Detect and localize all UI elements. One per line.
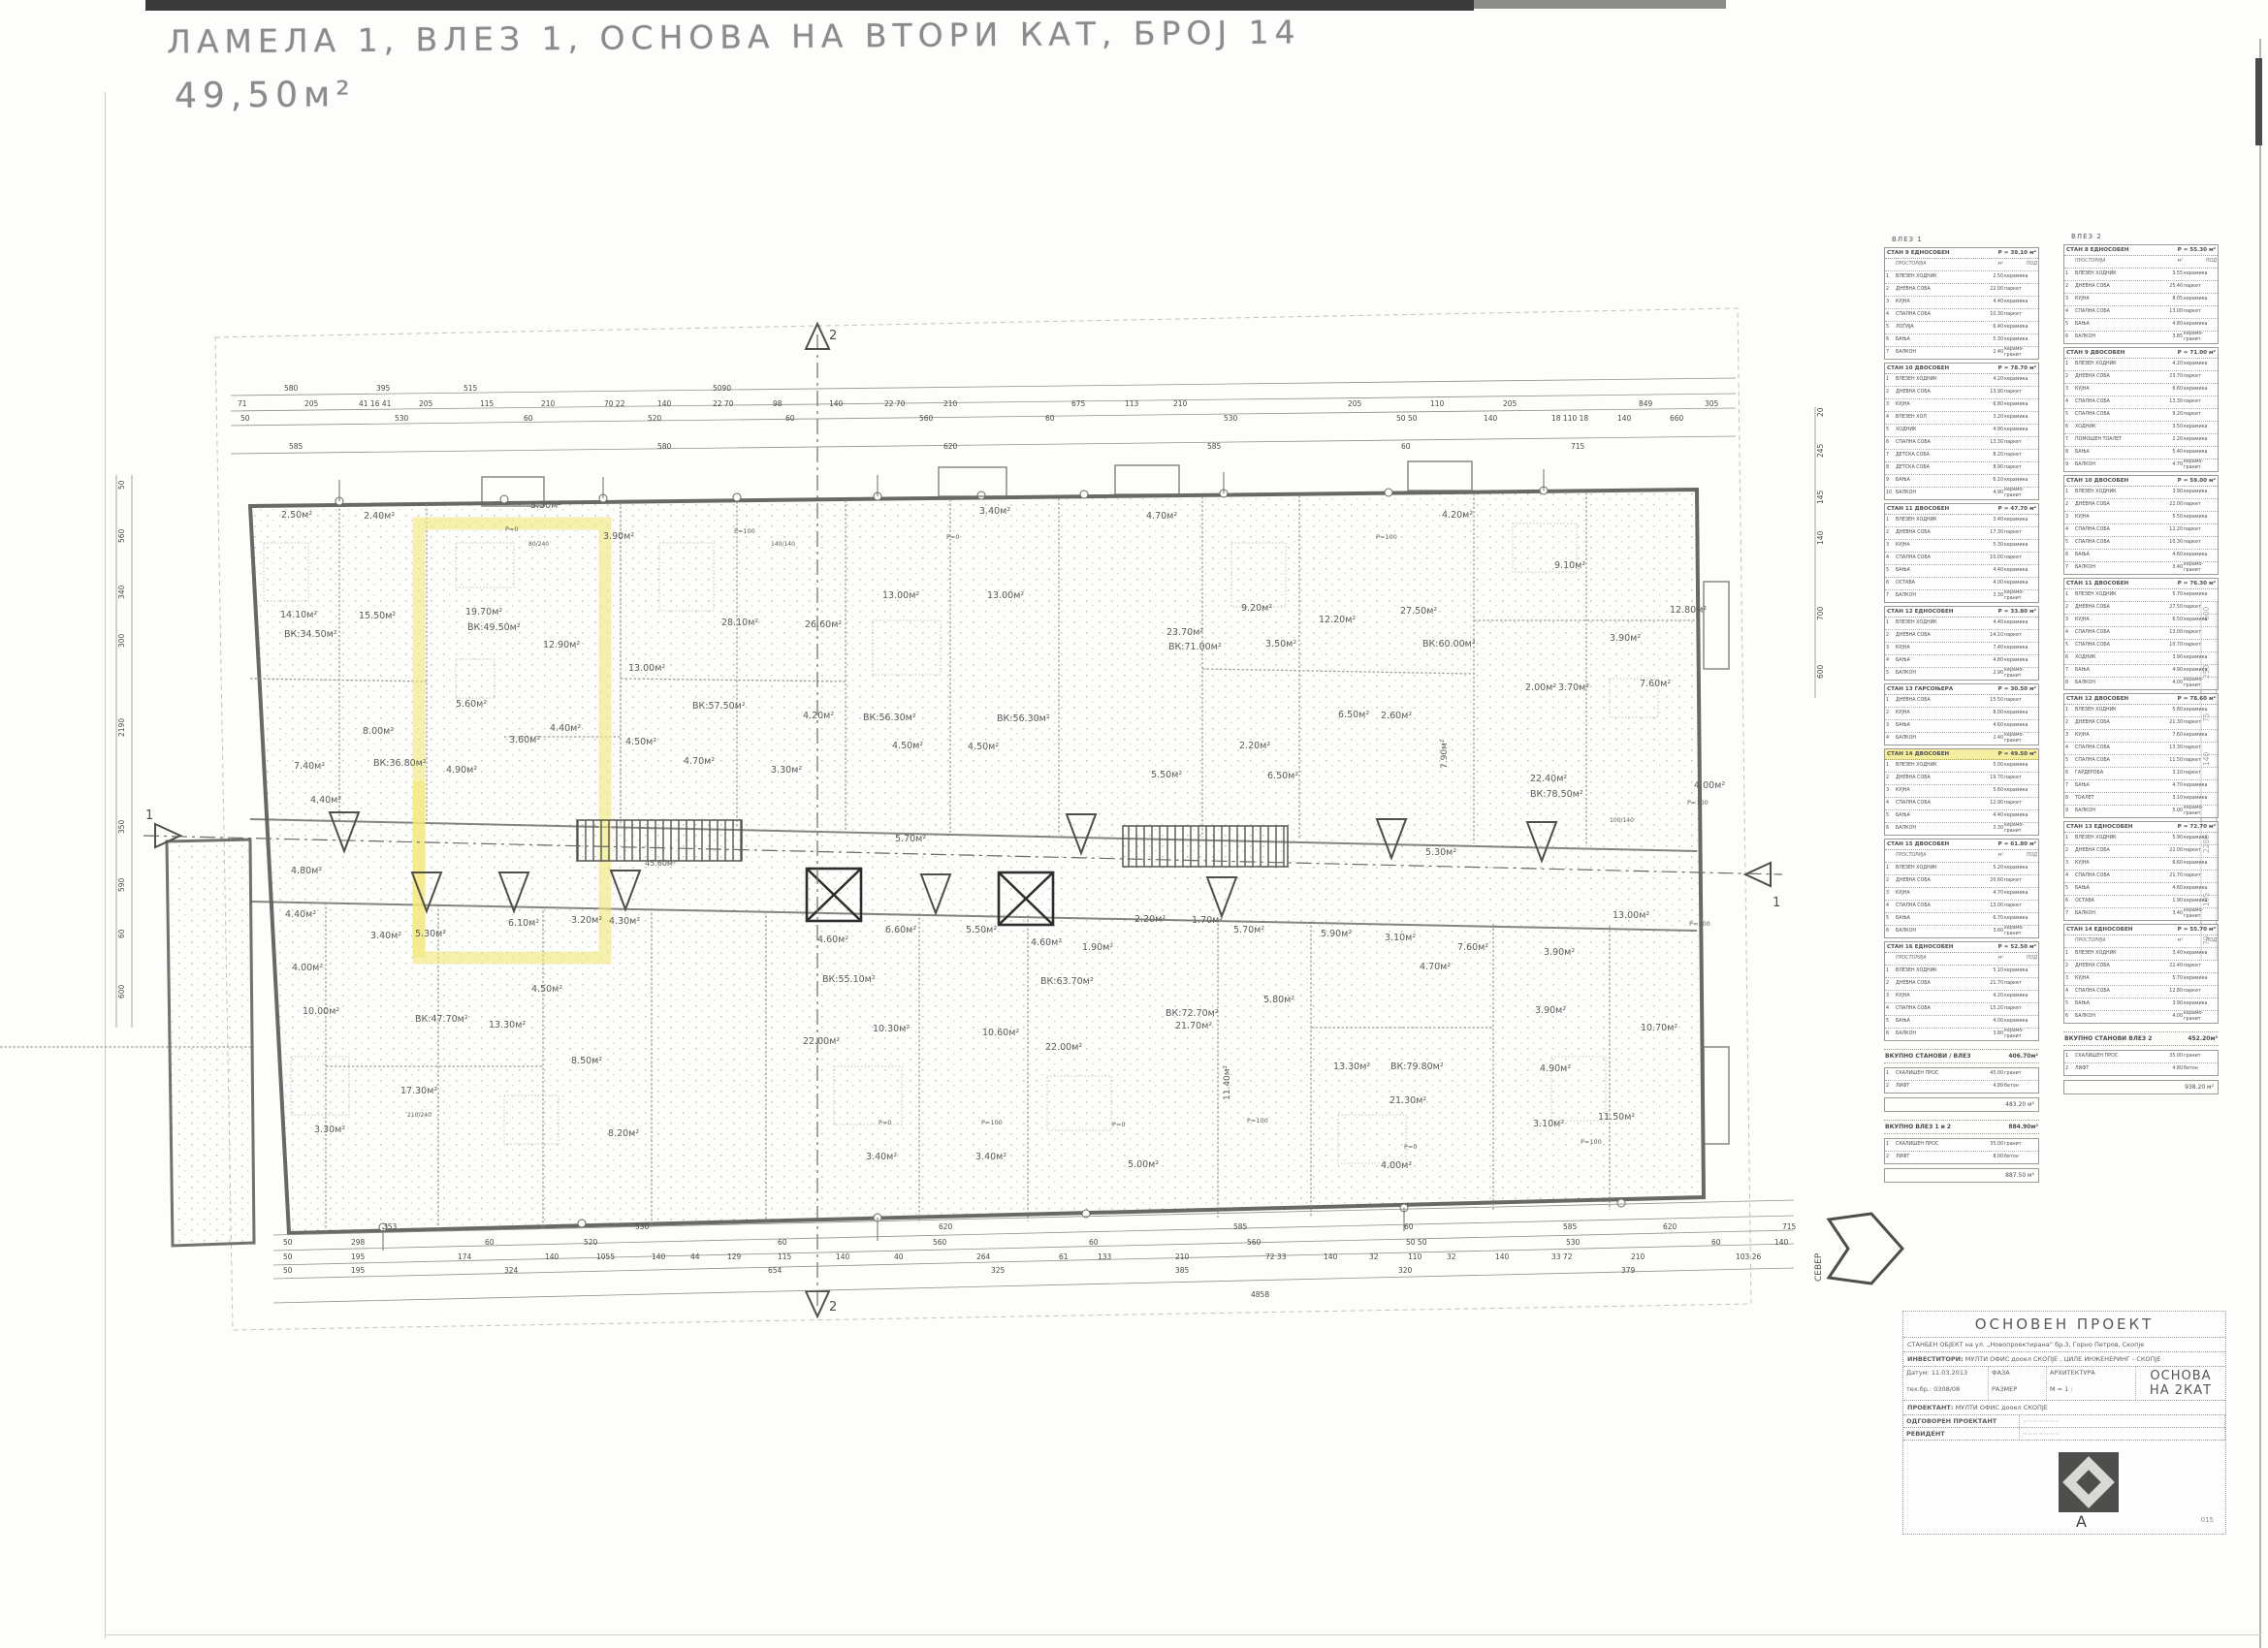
room-row: 6БАЊА5.30керамика [1885, 334, 2038, 347]
room-row: 3КУЈНА5.60керамика [1885, 785, 2038, 798]
room-row: 6БАЛКОН3.30керамо-гранит [1885, 823, 2038, 835]
dimension-label: 530 [1224, 414, 1238, 423]
totals-row: 1СКАЛИШЕН ПРОС.45.00гранит [1885, 1068, 2038, 1081]
responsible-signature-area: ~~~~~~~ [2020, 1415, 2225, 1427]
room-row: 5БАЊА3.90керамика [2064, 998, 2218, 1011]
totals-block: ВКУПНО СТАНОВИ / ВЛЕЗ406.70м²1СКАЛИШЕН П… [1884, 1049, 2039, 1112]
apartment-section-header: СТАН 13 ГАРСОЊЕРАP = 30.50 м² [1885, 684, 2038, 695]
room-area-label: 5.90м² [1321, 929, 1352, 939]
room-area-label: 3.60м² [509, 735, 540, 745]
room-row: 2ДНЕВНА СОБА17.30паркет [1885, 527, 2038, 540]
dimension-label: 50 [283, 1238, 293, 1247]
room-area-label: 7.60м² [1457, 942, 1488, 953]
room-row: 1ВЛЕЗЕН ХОДНИК3.40керамика [2064, 948, 2218, 961]
apartment-section-header: СТАН 14 ЕДНОСОБЕНP = 55.70 м² [2064, 925, 2218, 935]
room-row: 4СПАЛНА СОБА21.70паркет [2064, 871, 2218, 883]
apartment-table-entrance-1: ВЛЕЗ 1 СТАН 9 ЕДНОСОБЕНP = 39.10 м²ПРОСТ… [1884, 236, 2039, 1183]
room-row: 7БАЛКОН3.30керамо-гранит [1885, 590, 2038, 602]
room-area-label: 10.60м² [982, 1028, 1019, 1038]
dimension-label: 113 [1125, 399, 1139, 408]
room-row: 2ДНЕВНА СОБА14.10паркет [1885, 630, 2038, 643]
dimension-label: 849 [1639, 399, 1653, 408]
dimension-label: 61 [1059, 1252, 1069, 1261]
designer-line: ПРОЕКТАНТ: МУЛТИ ОФИС дооел СКОПЈЕ [1903, 1400, 2225, 1414]
totals-value: 938.20 м² [2063, 1080, 2219, 1094]
room-row: 4СПАЛНА СОБА13.30паркет [2064, 743, 2218, 755]
apartment-section-header: СТАН 9 ЕДНОСОБЕНP = 39.10 м² [1885, 248, 2038, 259]
totals-title: ВКУПНО ВЛЕЗ 1 и 2884.90м² [1884, 1120, 2039, 1134]
room-area-label: 8.50м² [571, 1056, 602, 1066]
apartment-section-header: СТАН 15 ДВОСОБЕНP = 61.80 м² [1885, 840, 2038, 850]
room-row: 4СПАЛНА СОБА15.20паркет [1885, 1003, 2038, 1016]
room-area-label: ВК:72.70м² [1166, 1008, 1219, 1019]
dimension-label: 300 [117, 633, 126, 648]
room-row: 2ДНЕВНА СОБА27.50паркет [2064, 602, 2218, 615]
room-area-label: ВК:56.30м² [997, 713, 1050, 724]
room-area-label: 10.70м² [1641, 1023, 1677, 1033]
room-row: 4СПАЛНА СОБА10.30паркет [1885, 309, 2038, 322]
dimension-label: 140 [1617, 414, 1632, 423]
room-area-label: 8.20м² [608, 1128, 639, 1139]
dimension-label: 60 [524, 414, 533, 423]
dimension-label: 210 [1175, 1252, 1190, 1261]
phase-value: АРХИТЕКТУРА [2047, 1367, 2136, 1383]
apartment-section: СТАН 10 ДВОСОБЕНP = 78.70 м²1ВЛЕЗЕН ХОДН… [1884, 363, 2039, 500]
room-row: 1ВЛЕЗЕН ХОДНИК5.20керамика [1885, 863, 2038, 875]
dimension-label: 50 [283, 1266, 293, 1275]
scanned-floor-plan-sheet: { "page": { "handwritten_title_line1": "… [0, 0, 2268, 1648]
dimension-label: 140 [652, 1252, 666, 1261]
room-area-label: 4.80м² [291, 866, 322, 876]
title-block-footer: А 015 [1903, 1440, 2225, 1534]
room-area-label: 13.00м² [882, 590, 919, 601]
room-area-label: 6.50м² [1338, 710, 1369, 720]
room-row: 4БАЛКОН2.40керамо-гранит [1885, 733, 2038, 745]
dimension-label: 620 [1663, 1222, 1677, 1231]
room-area-label: 7.60м² [1640, 679, 1671, 689]
dimension-label: 675 [1071, 399, 1086, 408]
apartment-section: СТАН 15 ДВОСОБЕНP = 61.80 м²ПРОСТОРИЈАм²… [1884, 839, 2039, 938]
room-area-label: 4.60м² [1031, 937, 1062, 948]
dimension-label: 33 72 [1551, 1252, 1573, 1261]
room-row: 5ХОДНИК4.90керамика [1885, 425, 2038, 437]
room-row: 1ВЛЕЗЕН ХОДНИК2.50керамика [1885, 271, 2038, 284]
room-area-label: 2.40м² [364, 511, 395, 522]
room-row: 10БАЛКОН4.90керамо-гранит [1885, 488, 2038, 499]
room-area-label: P=100 [1687, 799, 1709, 807]
dimension-label: 60 [117, 929, 126, 938]
room-area-label: 4.70м² [684, 756, 715, 767]
dimension-label: 205 [419, 399, 433, 408]
room-area-label: 45.60м² [645, 859, 676, 868]
dimension-label: 580 [657, 442, 672, 451]
dimension-label: 585 [1563, 1222, 1578, 1231]
dimension-label: 72 33 [1265, 1252, 1287, 1261]
phase-label: ФАЗА [1989, 1367, 2047, 1383]
room-area-label: ВК:78.50м² [1530, 789, 1583, 800]
room-row: 3КУЈНА7.40керамика [1885, 643, 2038, 655]
sheet-letter: А [2076, 1512, 2087, 1531]
dimension-label: 2190 [117, 718, 126, 737]
room-area-label: 21.70м² [1175, 1021, 1212, 1031]
dimension-label: 520 [584, 1238, 598, 1247]
dimension-label: 129 [727, 1252, 742, 1261]
room-area-label: 5.70м² [895, 834, 926, 844]
room-area-label: P=0 [1112, 1121, 1126, 1128]
dimension-label: 32 [1447, 1252, 1456, 1261]
room-area-label: 4.40м² [310, 795, 341, 806]
room-area-label: P=100 [1376, 533, 1397, 541]
room-area-label: 4.50м² [531, 984, 562, 995]
room-row: 2ДНЕВНА СОБА22.40паркет [2064, 961, 2218, 973]
room-area-label: 2.50м² [281, 510, 312, 521]
dimension-label: 41 16 41 [359, 399, 392, 408]
totals-row: 1СКАЛИШЕН ПРОС.35.00гранит [2064, 1051, 2218, 1063]
room-row: 5СПАЛНА СОБА11.50паркет [2064, 755, 2218, 768]
section-marker-a-right: 1 [1773, 896, 1780, 910]
dimension-label: 324 [504, 1266, 519, 1275]
dimension-label: 205 [1503, 399, 1517, 408]
room-area-label: ВК:60.00м² [1422, 639, 1476, 650]
room-area-label: 14.10м² [280, 610, 317, 620]
room-row: 5БАЊА4.00керамика [1885, 1016, 2038, 1029]
date-value: 11.03.2013 [1932, 1369, 1967, 1377]
room-row: 9БАЛКОН4.70керамо-гранит [2064, 460, 2218, 471]
apartment-section-header: СТАН 11 ДВОСОБЕНP = 47.70 м² [1885, 504, 2038, 515]
room-area-label: ВК:49.50м² [467, 622, 521, 633]
room-area-label: 5.50м² [1151, 770, 1182, 780]
room-area-label: 4.50м² [625, 737, 656, 747]
room-area-label: 3.40м² [370, 931, 401, 941]
room-area-label: 3.20м² [571, 915, 602, 926]
room-row: 6ГАРДЕРОБА3.10паркет [2064, 768, 2218, 780]
room-row: 8ТОАЛЕТ3.10керамика [2064, 793, 2218, 806]
room-row: 5СПАЛНА СОБА10.30паркет [2064, 537, 2218, 550]
room-row: 5БАЛКОН2.90керамо-гранит [1885, 668, 2038, 680]
dimension-label: 715 [1571, 442, 1585, 451]
room-area-label: P=100 [981, 1119, 1003, 1126]
dimension-label: 395 [376, 384, 391, 393]
dimension-label: 22 70 [713, 399, 734, 408]
room-area-label: ВК:47.70м² [415, 1014, 468, 1025]
dimension-label: 140 [829, 399, 844, 408]
room-area-label: 22.40м² [1530, 774, 1567, 784]
room-area-label: 11.50м² [1598, 1112, 1635, 1123]
dimension-label: 50 50 [1406, 1238, 1427, 1247]
room-row: 8БАЛКОН4.00керамо-гранит [2064, 678, 2218, 689]
scale-value: М = 1 : [2047, 1383, 2136, 1400]
room-row: 9БАЛКОН5.00керамо-гранит [2064, 806, 2218, 817]
entrance-1-title: ВЛЕЗ 1 [1892, 236, 2039, 243]
room-row: 2ДНЕВНА СОБА19.70паркет [1885, 773, 2038, 785]
room-row: 7ДЕТСКА СОБА8.20паркет [1885, 450, 2038, 462]
dimension-label: 210 [1173, 399, 1188, 408]
dimension-label: 40 [894, 1252, 904, 1261]
room-area-label: 4.40м² [550, 723, 581, 734]
room-row: 8ДЕТСКА СОБА8.90паркет [1885, 462, 2038, 475]
dimension-label: 585 [1207, 442, 1222, 451]
dimension-label: 115 [480, 399, 495, 408]
column-headers: ПРОСТОРИЈАм²ПОД [1885, 850, 2038, 863]
room-row: 6БАЛКОН3.80керамо-гранит [1885, 1029, 2038, 1040]
room-row: 3КУЈНА5.70керамика [2064, 973, 2218, 986]
room-row: 8БАЊА5.40керамика [2064, 447, 2218, 460]
room-area-label: 4.90м² [1540, 1063, 1571, 1074]
apartment-section: СТАН 12 ЕДНОСОБЕНP = 33.80 м²1ВЛЕЗЕН ХОД… [1884, 606, 2039, 681]
dimension-label: 140 [836, 1252, 850, 1261]
apartment-section: СТАН 13 ГАРСОЊЕРАP = 30.50 м²1ДНЕВНА СОБ… [1884, 683, 2039, 745]
apartment-section: СТАН 9 ДВОСОБЕНP = 71.00 м²1ВЛЕЗЕН ХОДНИ… [2063, 347, 2219, 472]
totals-block: ВКУПНО СТАНОВИ ВЛЕЗ 2452.20м²1СКАЛИШЕН П… [2063, 1031, 2219, 1094]
room-row: 7БАЛКОН3.40керамо-гранит [2064, 908, 2218, 920]
apartment-section: СТАН 12 ДВОСОБЕНP = 78.60 м²1ВЛЕЗЕН ХОДН… [2063, 693, 2219, 818]
room-area-label: 5.80м² [1263, 995, 1294, 1005]
dimension-label: 560 [117, 528, 126, 543]
room-area-label: 23.70м² [1166, 627, 1203, 638]
room-area-label: ВК:55.10м² [822, 974, 876, 985]
room-row: 3КУЈНА6.60керамика [2064, 384, 2218, 396]
room-row: 2ДНЕВНА СОБА22.00паркет [1885, 284, 2038, 297]
room-area-label: 6.60м² [885, 925, 916, 935]
totals-value: 887.50 м² [1884, 1168, 2039, 1183]
room-area-label: 13.30м² [489, 1020, 526, 1030]
room-row: 5БАЊА4.80керамика [2064, 319, 2218, 332]
room-row: 1ВЛЕЗЕН ХОДНИК3.90керамика [2064, 487, 2218, 499]
dimension-label: 60 [778, 1238, 787, 1247]
room-area-label: 13.00м² [987, 590, 1024, 601]
dimension-label: 50 [117, 480, 126, 490]
room-area-label: 5.00м² [1128, 1159, 1159, 1170]
room-area-label: 12.80м² [1670, 605, 1707, 616]
apartment-section: СТАН 10 ДВОСОБЕНP = 59.00 м²1ВЛЕЗЕН ХОДН… [2063, 475, 2219, 575]
dimension-label: 60 [1404, 1222, 1414, 1231]
room-row: 7БАЛКОН3.40керамо-гранит [2064, 562, 2218, 574]
apartment-section: СТАН 8 ЕДНОСОБЕНP = 55.30 м²ПРОСТОРИЈАм²… [2063, 244, 2219, 344]
dimension-label: 44 [690, 1252, 700, 1261]
totals-row: 1СКАЛИШЕН ПРОС.35.00гранит [1885, 1139, 2038, 1152]
room-area-label: 4.50м² [892, 741, 923, 751]
responsible-label: ОДГОВОРЕН ПРОЕКТАНТ [1903, 1415, 2020, 1427]
dimension-label: 385 [1175, 1266, 1190, 1275]
dimension-label: 560 [933, 1238, 947, 1247]
room-area-label: 5.60м² [456, 699, 487, 710]
apartment-section-header: СТАН 16 ЕДНОСОБЕНP = 52.50 м² [1885, 942, 2038, 953]
room-area-label: 22.00м² [803, 1036, 840, 1047]
room-row: 3КУЈНА5.30керамика [1885, 540, 2038, 553]
room-area-label: 4.70м² [1146, 511, 1177, 522]
room-area-label: 5.50м² [966, 925, 997, 935]
dimension-label: 560 [1247, 1238, 1262, 1247]
dimension-label: 305 [1705, 399, 1719, 408]
sheet-number: 015 [2201, 1516, 2214, 1524]
room-row: 1ВЛЕЗЕН ХОДНИК5.90керамика [2064, 833, 2218, 845]
reviewer-signature-area: ~~~~~~~ [2020, 1428, 2225, 1440]
room-area-label: 26.60м² [805, 619, 842, 630]
column-headers: ПРОСТОРИЈАм²ПОД [2064, 256, 2218, 269]
room-area-label: P=0 [505, 525, 519, 533]
totals-block: ВКУПНО ВЛЕЗ 1 и 2884.90м²1СКАЛИШЕН ПРОС.… [1884, 1120, 2039, 1183]
dimension-label: 60 [485, 1238, 495, 1247]
technum-cell: тех.бр.: 0308/08 [1903, 1383, 1989, 1400]
room-area-label: 12.20м² [1319, 615, 1356, 625]
designer-label: ПРОЕКТАНТ: [1907, 1404, 1953, 1411]
room-row: 3КУЈНА4.70керамика [1885, 888, 2038, 901]
dimension-label: 70 22 [604, 399, 625, 408]
dimension-label: 1055 [596, 1252, 615, 1261]
apartment-section-header: СТАН 8 ЕДНОСОБЕНP = 55.30 м² [2064, 245, 2218, 256]
room-area-label: 21.30м² [1390, 1095, 1426, 1106]
room-row: 5СПАЛНА СОБА9.20паркет [2064, 409, 2218, 422]
dimension-label: 600 [1816, 664, 1825, 679]
room-area-label: 4.20м² [803, 711, 834, 721]
room-row: 6СПАЛНА СОБА13.30паркет [1885, 437, 2038, 450]
dimension-label: 530 [1566, 1238, 1581, 1247]
room-area-label: 9.20м² [1241, 603, 1272, 614]
dimension-label: 340 [117, 585, 126, 599]
room-row: 1ВЛЕЗЕН ХОДНИК5.10керамика [1885, 966, 2038, 978]
room-area-label: ВК:57.50м² [692, 701, 746, 712]
room-row: 1ВЛЕЗЕН ХОДНИК4.40керамика [1885, 618, 2038, 630]
apartment-section-header: СТАН 9 ДВОСОБЕНP = 71.00 м² [2064, 348, 2218, 359]
dimension-label: 22 70 [884, 399, 906, 408]
totals-row: 2ЛИФТ4.80бетон [2064, 1063, 2218, 1075]
dimension-label: 660 [1670, 414, 1684, 423]
date-label: Датум: [1906, 1369, 1930, 1377]
dimension-label: 210 [943, 399, 958, 408]
dimension-label: 715 [1782, 1222, 1797, 1231]
room-area-label: ВК:71.00м² [1168, 642, 1222, 652]
room-area-label: 4.20м² [1442, 510, 1473, 521]
room-row: 3КУЈНА8.05керамика [2064, 294, 2218, 306]
apartment-table-entrance-2: ВЛЕЗ 2 СТАН 8 ЕДНОСОБЕНP = 55.30 м²ПРОСТ… [2063, 233, 2219, 1094]
room-area-label: 4.30м² [609, 916, 640, 927]
entrance-2-sections: СТАН 8 ЕДНОСОБЕНP = 55.30 м²ПРОСТОРИЈАм²… [2063, 244, 2219, 1094]
room-area-label: 1.70м² [1192, 915, 1223, 926]
room-area-label: 2.00м² [1525, 682, 1556, 693]
room-row: 1ВЛЕЗЕН ХОДНИК5.70керамика [2064, 589, 2218, 602]
room-row: 6БАЛКОН3.85керамо-гранит [2064, 332, 2218, 343]
room-row: 3КУЈНА7.60керамика [2064, 730, 2218, 743]
room-area-label: 3.90м² [603, 531, 634, 542]
apartment-section-header: СТАН 12 ЕДНОСОБЕНP = 33.80 м² [1885, 607, 2038, 618]
room-area-label: P=100 [1247, 1117, 1268, 1125]
dimension-label: 50 [283, 1252, 293, 1261]
column-headers: ПРОСТОРИЈАм²ПОД [2064, 935, 2218, 948]
room-area-label: 5.30м² [415, 929, 446, 939]
room-area-label: 4.00м² [1694, 780, 1725, 791]
dimension-label: 140 [1816, 530, 1825, 545]
room-area-label: 4.60м² [817, 935, 848, 945]
dimension-label: 60 [785, 414, 795, 423]
column-headers: ПРОСТОРИЈАм²ПОД [1885, 259, 2038, 271]
room-area-label: 1.90м² [1082, 942, 1113, 953]
section-marker-2-bottom: 2 [829, 1300, 837, 1315]
dimension-label: 530 [635, 1222, 650, 1231]
room-area-label: ВК:63.70м² [1040, 976, 1094, 987]
apartment-section-header: СТАН 10 ДВОСОБЕНP = 59.00 м² [2064, 476, 2218, 487]
room-row: 4СПАЛНА СОБА13.00паркет [2064, 627, 2218, 640]
room-row: 3КУЈНА6.50керамика [2064, 615, 2218, 627]
room-area-label: 15.50м² [359, 611, 396, 621]
dimension-label: 325 [991, 1266, 1006, 1275]
apartment-section-header: СТАН 13 ЕДНОСОБЕНP = 72.70 м² [2064, 822, 2218, 833]
scale-label: РАЗМЕР [1989, 1383, 2047, 1400]
room-row: 5БАЊА4.60керамика [2064, 883, 2218, 896]
room-row: 1ВЛЕЗЕН ХОДНИК4.20керамика [1885, 374, 2038, 387]
room-area-label: ВК:36.80м² [373, 758, 427, 769]
room-area-label: 5.70м² [1233, 925, 1264, 935]
dimension-label: 620 [943, 442, 958, 451]
room-row: 1ВЛЕЗЕН ХОДНИК5.00керамика [1885, 760, 2038, 773]
dimension-label: 320 [1398, 1266, 1413, 1275]
apartment-section: СТАН 11 ДВОСОБЕНP = 76.30 м²1ВЛЕЗЕН ХОДН… [2063, 578, 2219, 690]
room-row: 2КУЈНА8.00керамика [1885, 708, 2038, 720]
room-area-label: 3.70м² [1558, 682, 1589, 693]
room-row: 2ДНЕВНА СОБА25.40паркет [2064, 281, 2218, 294]
room-area-label: 4.90м² [446, 765, 477, 776]
room-area-label: 3.50м² [1265, 639, 1296, 650]
room-area-label: 11.40м² [1223, 1064, 1232, 1100]
totals-row: 2ЛИФТ4.80бетон [1885, 1081, 2038, 1093]
room-row: 7БАЊА4.70керамика [2064, 780, 2218, 793]
room-area-label: P=100 [1581, 1138, 1602, 1146]
room-area-label: 17.30м² [400, 1086, 437, 1096]
dimension-label: 515 [463, 384, 478, 393]
room-area-label: 12.90м² [543, 640, 580, 650]
apartment-section: СТАН 14 ЕДНОСОБЕНP = 55.70 м²ПРОСТОРИЈАм… [2063, 924, 2219, 1024]
room-row: 1ВЛЕЗЕН ХОДНИК3.55керамика [2064, 269, 2218, 281]
title-block-object: СТАНБЕН ОБЈЕКТ на ул. „Новопроектирана“ … [1903, 1337, 2225, 1351]
entrance-1-sections: СТАН 9 ЕДНОСОБЕНP = 39.10 м²ПРОСТОРИЈАм²… [1884, 247, 2039, 1183]
investors-label: ИНВЕСТИТОРИ: [1907, 1355, 1964, 1363]
room-row: 3БАЊА4.60керамика [1885, 720, 2038, 733]
dimension-label: 60 [1089, 1238, 1099, 1247]
dimension-label: 20 [1816, 407, 1825, 417]
room-row: 4СПАЛНА СОБА13.00паркет [1885, 901, 2038, 913]
dimension-label: 600 [117, 984, 126, 998]
apartment-section: СТАН 14 ДВОСОБЕНP = 49.50 м²1ВЛЕЗЕН ХОДН… [1884, 748, 2039, 836]
room-row: 6ХОДНИК3.50керамика [2064, 422, 2218, 434]
dimension-label: 140 [1324, 1252, 1338, 1261]
room-area-label: 80/240 [528, 541, 549, 548]
room-area-label: 210/240 [407, 1112, 431, 1119]
dimension-label: 205 [304, 399, 319, 408]
room-row: 3КУЈНА6.60керамика [2064, 858, 2218, 871]
room-row: 3КУЈНА5.50керамика [2064, 512, 2218, 524]
section-marker-a-left: 1 [145, 808, 153, 823]
dimension-label: 350 [117, 819, 126, 834]
room-row: 3КУЈНА6.80керамика [1885, 399, 2038, 412]
dimension-label: 145 [1816, 490, 1825, 504]
apartment-section-header: СТАН 11 ДВОСОБЕНP = 76.30 м² [2064, 579, 2218, 589]
room-area-label: 3.40м² [866, 1152, 897, 1162]
north-label: СЕВЕР [1814, 1252, 1824, 1282]
room-row: 4СПАЛНА СОБА12.20паркет [2064, 524, 2218, 537]
room-area-label: 4.40м² [285, 909, 316, 920]
drawing-title: ОСНОВА НА 2КАТ [2136, 1367, 2225, 1400]
room-area-label: 3.40м² [975, 1152, 1006, 1162]
dimension-label: 560 [919, 414, 934, 423]
room-row: 6ОСТАВА1.90керамика [2064, 896, 2218, 908]
room-area-label: 13.30м² [1333, 1062, 1370, 1072]
dimension-label: 205 [1348, 399, 1362, 408]
dimension-label: 32 [1369, 1252, 1379, 1261]
room-row: 4СПАЛНА СОБА13.30паркет [2064, 396, 2218, 409]
dimension-label: 590 [117, 877, 126, 892]
dimension-label: 620 [939, 1222, 953, 1231]
company-logo-icon [2059, 1452, 2119, 1512]
room-area-label: 3.90м² [1544, 947, 1575, 958]
